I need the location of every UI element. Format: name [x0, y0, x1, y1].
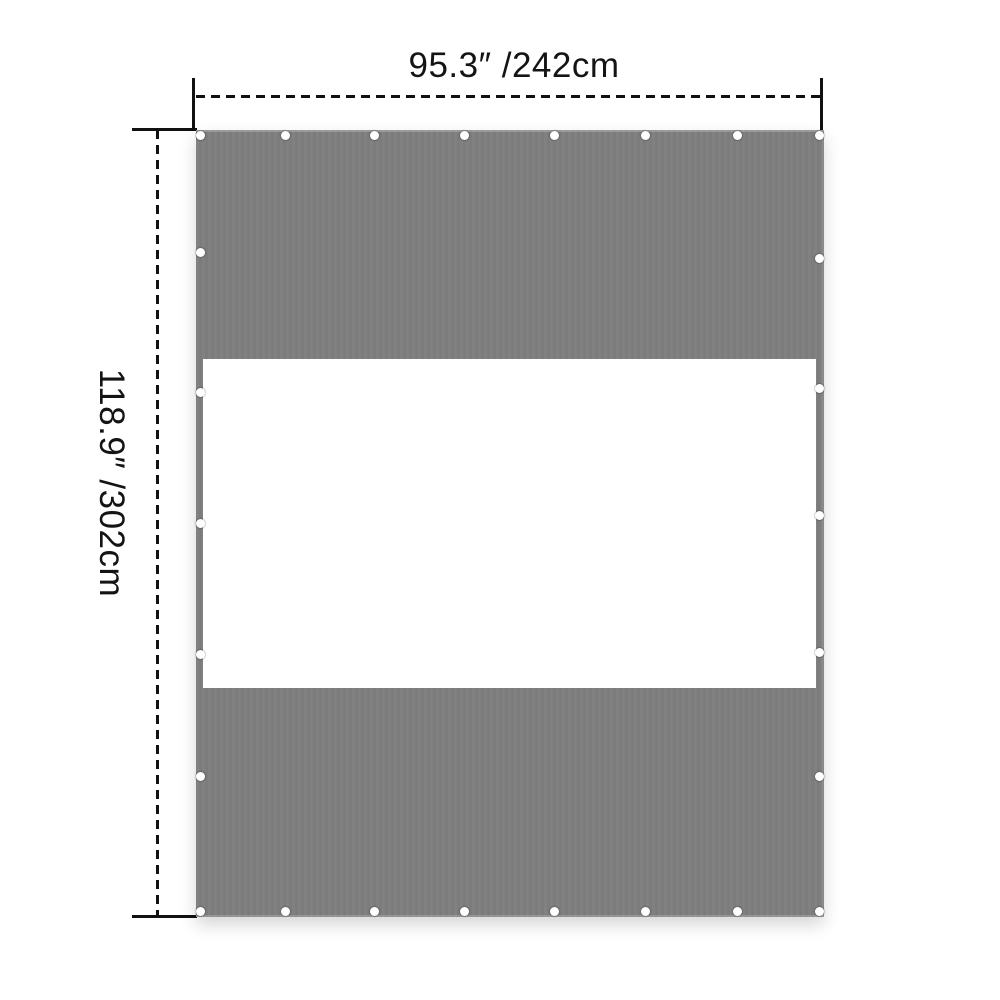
grommet: [733, 907, 742, 916]
grommet: [641, 907, 650, 916]
grommet: [815, 384, 824, 393]
grommet: [196, 388, 205, 397]
grommet: [370, 131, 379, 140]
grommet: [460, 907, 469, 916]
height-dimension-label: 118.9″ /302cm: [91, 369, 131, 597]
grommet: [550, 131, 559, 140]
width-dimension-tick-right: [820, 78, 823, 131]
grommet: [196, 772, 205, 781]
grommet: [196, 248, 205, 257]
grommet: [281, 131, 290, 140]
grommet: [815, 772, 824, 781]
grommet: [815, 511, 824, 520]
grommet: [281, 907, 290, 916]
grommet: [815, 648, 824, 657]
grommet: [196, 519, 205, 528]
height-dimension-line: [156, 130, 159, 916]
grommet: [815, 254, 824, 263]
grommet: [641, 131, 650, 140]
width-dimension-tick-left: [192, 78, 195, 131]
window-cutout: [203, 359, 816, 688]
grommet: [733, 131, 742, 140]
product-dimension-diagram: 95.3″ /242cm 118.9″ /302cm: [0, 0, 1000, 1000]
width-dimension-label: 95.3″ /242cm: [408, 46, 619, 86]
grommet: [460, 131, 469, 140]
grommet: [815, 131, 824, 140]
height-dimension-tick-bottom: [132, 915, 197, 918]
grommet: [196, 131, 205, 140]
grommet: [196, 650, 205, 659]
grommet: [550, 907, 559, 916]
grommet: [196, 907, 205, 916]
height-dimension-tick-top: [132, 128, 197, 131]
grommet: [370, 907, 379, 916]
grommet: [815, 907, 824, 916]
width-dimension-line: [196, 95, 822, 98]
